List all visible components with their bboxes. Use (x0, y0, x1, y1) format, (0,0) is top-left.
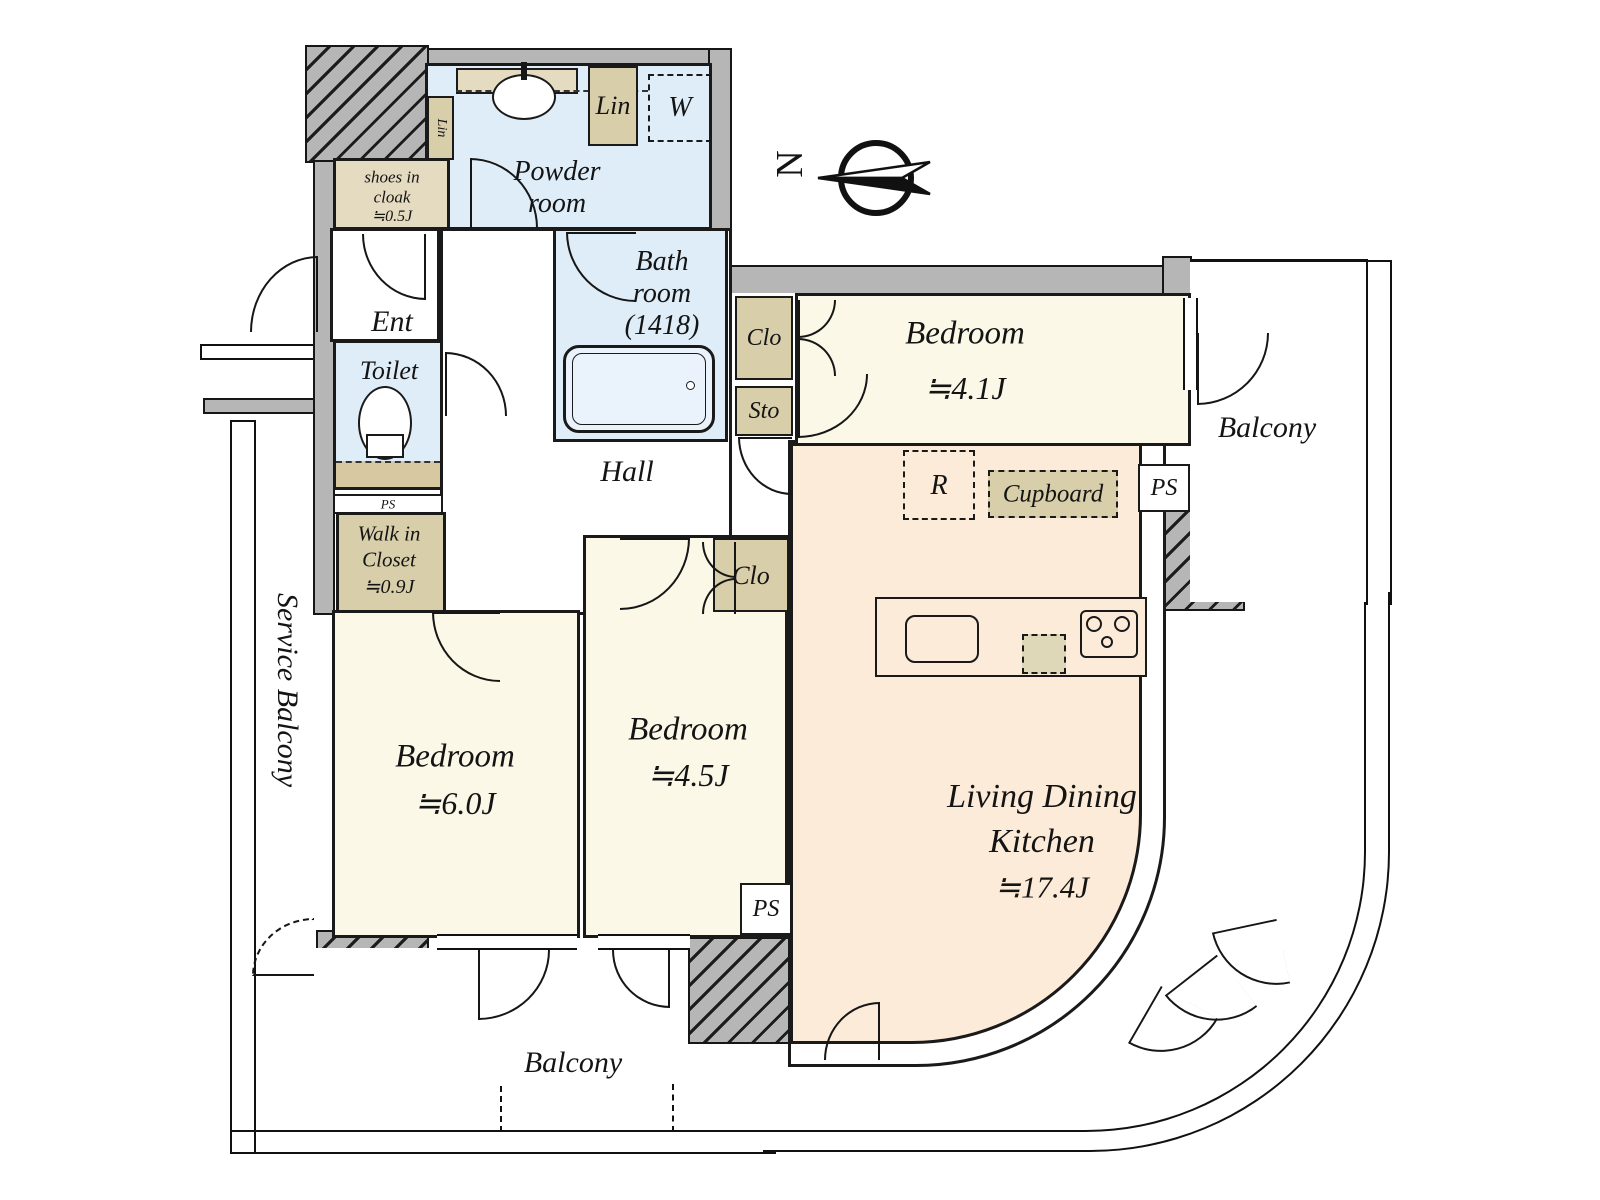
label-bedroom41-size: ≒4.1J (924, 372, 1005, 404)
exterior-stub-wall-2 (203, 398, 317, 414)
label-bath-3: (1418) (625, 312, 700, 340)
toilet-floor-step (336, 461, 440, 487)
window-bedroom60 (437, 934, 577, 950)
wall-top-left-corner (305, 45, 429, 163)
bathtub-drain (686, 381, 695, 390)
balcony-divider-dashed-1 (500, 1086, 510, 1132)
label-cupboard: Cupboard (1003, 482, 1103, 507)
label-ps-kitchen: PS (1151, 476, 1178, 500)
right-balcony-parapet (1366, 260, 1392, 605)
label-ps-toilet: PS (381, 498, 395, 511)
label-lin-side: Lin (434, 119, 448, 138)
balcony-divider-dashed-2 (672, 1084, 682, 1132)
window-bedroom41-balcony (1183, 298, 1198, 390)
label-sto-41: Sto (749, 399, 780, 423)
label-bedroom60-name: Bedroom (395, 741, 515, 774)
stove-burner-center (1101, 636, 1113, 648)
toilet-seat (366, 434, 404, 458)
stove-burner-right (1114, 616, 1130, 632)
label-clo-41: Clo (747, 326, 782, 350)
label-hall: Hall (600, 457, 653, 487)
service-balcony-dashed-door (252, 918, 314, 976)
bottom-balcony-parapet (230, 1130, 776, 1154)
label-ldk-size: ≒17.4J (995, 872, 1089, 903)
exterior-stub-wall (200, 344, 317, 360)
label-powder-2: room (528, 190, 586, 218)
powder-faucet (521, 62, 527, 80)
bathtub-inner-line (572, 353, 706, 425)
label-bath-1: Bath (636, 248, 689, 276)
label-refrigerator: R (930, 472, 947, 500)
floor-plan: N Powder room Bath room (1418) Lin Lin W… (0, 0, 1600, 1200)
label-balcony-bottom: Balcony (524, 1048, 622, 1078)
label-wic-2: Closet (362, 550, 416, 571)
label-bedroom41-name: Bedroom (905, 318, 1025, 351)
room-ldk (790, 443, 1142, 1044)
label-powder-1: Powder (513, 158, 600, 186)
label-service-balcony: Service Balcony (272, 593, 302, 787)
label-wic-size: ≒0.9J (364, 577, 415, 597)
label-shoes-1: shoes in (364, 169, 419, 186)
window-bedroom45 (598, 934, 690, 950)
kitchen-sink (905, 615, 979, 663)
label-washer: W (668, 94, 691, 122)
wall-above-bedroom41 (730, 265, 1192, 295)
entrance-door (250, 256, 318, 332)
label-lin-top: Lin (596, 93, 631, 119)
label-balcony-right: Balcony (1218, 413, 1316, 443)
label-clo-45: Clo (732, 563, 770, 589)
compass-arrow-icon (812, 158, 936, 198)
dishwasher-space (1022, 634, 1066, 674)
service-balcony-parapet (230, 420, 256, 1154)
label-shoes-size: ≒0.5J (372, 209, 413, 225)
label-toilet: Toilet (360, 358, 418, 384)
label-bedroom45-name: Bedroom (628, 714, 748, 747)
powder-sink (492, 74, 556, 120)
label-wic-1: Walk in (358, 524, 421, 545)
compass-north-label: N (771, 150, 809, 177)
label-ent: Ent (371, 307, 413, 337)
label-bedroom60-size: ≒6.0J (414, 787, 495, 819)
label-shoes-2: cloak (374, 189, 411, 206)
label-bath-2: room (633, 280, 691, 308)
label-ps-bedroom45: PS (753, 897, 780, 921)
label-ldk-2: Kitchen (989, 825, 1095, 859)
wall-top-right-nub (1162, 256, 1192, 298)
stove-burner-left (1086, 616, 1102, 632)
label-bedroom45-size: ≒4.5J (647, 759, 728, 791)
label-ldk-1: Living Dining (947, 780, 1137, 814)
